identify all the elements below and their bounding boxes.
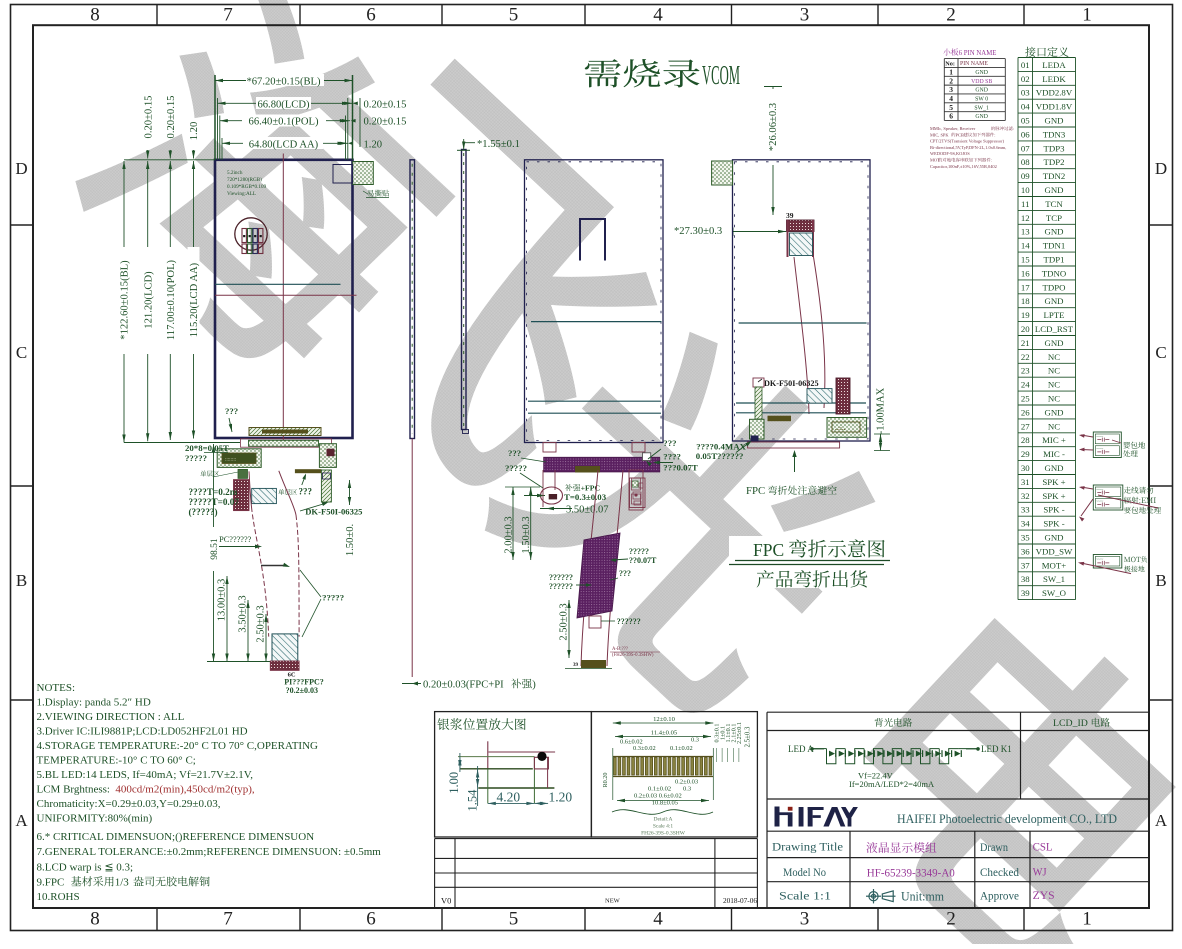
svg-text::: :: [991, 158, 992, 163]
svg-text:SPK -: SPK -: [1043, 505, 1064, 515]
svg-text:35: 35: [1021, 532, 1030, 542]
svg-text:0.20±0.15: 0.20±0.15: [364, 117, 407, 128]
svg-text:C: C: [1155, 343, 1166, 362]
svg-text:0.2±0.03: 0.2±0.03: [675, 779, 698, 786]
svg-text:2018-07-06: 2018-07-06: [723, 896, 757, 905]
svg-text:Scale 4:1: Scale 4:1: [653, 824, 674, 830]
svg-text:10: 10: [1021, 185, 1030, 195]
svg-text:32: 32: [1021, 491, 1030, 501]
svg-text:Checked: Checked: [980, 867, 1019, 879]
svg-text:1: 1: [1082, 909, 1092, 930]
svg-text:3.Driver IC:ILI9881P;LCD:LD052: 3.Driver IC:ILI9881P;LCD:LD052HF2L01 HD: [37, 726, 248, 738]
svg-text:4: 4: [653, 909, 663, 930]
svg-text:NC: NC: [1048, 380, 1060, 390]
svg-text:10.ROHS: 10.ROHS: [37, 891, 80, 903]
svg-text:12±0.10: 12±0.10: [653, 716, 675, 723]
svg-text:LPTE: LPTE: [1043, 310, 1064, 320]
svg-text:1.20: 1.20: [549, 790, 573, 805]
svg-text:*27.30±0.3: *27.30±0.3: [674, 226, 722, 237]
svg-text:0.3: 0.3: [691, 737, 699, 744]
svg-text:02: 02: [1021, 74, 1030, 84]
svg-text:GND: GND: [1044, 115, 1063, 125]
svg-text:38: 38: [1021, 574, 1030, 584]
svg-text:DK-F50I-06325: DK-F50I-06325: [764, 379, 819, 388]
svg-text:..::..: ..::..: [835, 426, 845, 432]
svg-text:0.109*RGB*0.109: 0.109*RGB*0.109: [227, 184, 267, 190]
svg-text:~~~~: ~~~~: [1096, 499, 1103, 503]
svg-text:???: ???: [225, 406, 238, 416]
svg-text:2: 2: [946, 909, 956, 930]
svg-text:18: 18: [1021, 296, 1030, 306]
svg-text:GND: GND: [975, 70, 988, 76]
svg-text:???: ???: [619, 569, 631, 578]
svg-text:???: ???: [299, 487, 313, 497]
svg-text:??????: ??????: [549, 582, 573, 591]
svg-text:?????: ?????: [322, 593, 344, 603]
svg-text:01: 01: [1021, 60, 1030, 70]
svg-text:7.GENERAL TOLERANCE:±0.2mm;REF: 7.GENERAL TOLERANCE:±0.2mm;REFERENCE DIM…: [37, 846, 382, 858]
svg-text:GND: GND: [1044, 227, 1063, 237]
svg-text:Chromaticity:X=0.29±0.03,Y=0.2: Chromaticity:X=0.29±0.03,Y=0.29±0.03,: [37, 798, 221, 810]
svg-text:4.20: 4.20: [497, 790, 521, 805]
svg-text:1.20: 1.20: [189, 122, 200, 141]
svg-text:5: 5: [509, 909, 519, 930]
svg-text:???0.07T: ???0.07T: [663, 463, 698, 473]
svg-text:39: 39: [573, 663, 579, 668]
svg-text:0.3±0.02: 0.3±0.02: [633, 745, 656, 752]
svg-text:HF-65239-3349-A0: HF-65239-3349-A0: [867, 868, 955, 880]
svg-text:3: 3: [800, 5, 810, 26]
svg-text:0.20±0.15: 0.20±0.15: [143, 96, 154, 139]
svg-text:No:: No:: [945, 60, 955, 67]
svg-text:07: 07: [1021, 143, 1030, 153]
svg-text:MIC +: MIC +: [1042, 435, 1066, 445]
svg-text:D: D: [1155, 159, 1167, 178]
svg-text:??????: ??????: [549, 573, 573, 582]
svg-text:27: 27: [1021, 421, 1030, 431]
svg-text:37: 37: [1021, 560, 1030, 570]
svg-text:Detail:A: Detail:A: [654, 817, 673, 823]
svg-text:NOTES:: NOTES:: [37, 682, 76, 694]
svg-text:0.20±0.15: 0.20±0.15: [364, 99, 407, 110]
svg-text:1/3: 1/3: [115, 877, 130, 889]
svg-text:121.20(LCD): 121.20(LCD): [143, 271, 154, 329]
svg-text:DK-F50I-06325: DK-F50I-06325: [305, 507, 362, 517]
svg-text:NC: NC: [1048, 421, 1060, 431]
svg-text:MIC -: MIC -: [1043, 449, 1065, 459]
svg-text:117.00±0.10(POL): 117.00±0.10(POL): [166, 259, 177, 340]
svg-text:TCN: TCN: [1045, 199, 1063, 209]
svg-text:GND: GND: [1044, 338, 1063, 348]
svg-text:64.80(LCD AA): 64.80(LCD AA): [249, 139, 319, 150]
svg-text:PCB: PCB: [956, 132, 964, 137]
svg-text:??0.07T: ??0.07T: [629, 556, 657, 565]
svg-text:GND: GND: [975, 88, 988, 94]
svg-text:8: 8: [90, 909, 100, 930]
svg-text:1.50±0.3: 1.50±0.3: [521, 516, 532, 553]
svg-text:????: ????: [663, 452, 681, 462]
svg-text:34: 34: [1021, 519, 1030, 529]
svg-text:2.VIEWING DIRECTION : ALL: 2.VIEWING DIRECTION : ALL: [37, 711, 185, 723]
svg-text:SPK +: SPK +: [1042, 477, 1065, 487]
svg-text:13.00±0.3: 13.00±0.3: [217, 579, 228, 622]
svg-text:03: 03: [1021, 88, 1030, 98]
svg-text:6.* CRITICAL DIMENSUON;()REFER: 6.* CRITICAL DIMENSUON;()REFERENCE DIMEN…: [37, 831, 315, 843]
svg-text:12: 12: [1021, 213, 1030, 223]
svg-text:TDN3: TDN3: [1043, 129, 1066, 139]
svg-text:28: 28: [1021, 435, 1030, 445]
svg-text:GND: GND: [1044, 185, 1063, 195]
svg-text:GND: GND: [1044, 463, 1063, 473]
svg-text:4: 4: [949, 94, 953, 103]
svg-text:05: 05: [1021, 115, 1030, 125]
svg-text:SW 0: SW 0: [975, 96, 988, 102]
svg-text:TDP1: TDP1: [1043, 254, 1064, 264]
svg-text:(FH26-39S-0.3SHW): (FH26-39S-0.3SHW): [612, 653, 654, 658]
svg-text:24: 24: [1021, 380, 1030, 390]
svg-text:39: 39: [1021, 588, 1030, 598]
svg-text:?????: ?????: [505, 463, 527, 473]
svg-text:400cd/m2(min),450cd/m2(typ),: 400cd/m2(min),450cd/m2(typ),: [115, 784, 255, 796]
svg-text:0.20±0.15: 0.20±0.15: [166, 96, 177, 139]
svg-text:1.50±0.: 1.50±0.: [345, 524, 356, 556]
svg-text:5.BL LED:14 LEDS, If=40mA; Vf: 5.BL LED:14 LEDS, If=40mA; Vf=21.7V±2.1V…: [37, 769, 254, 781]
svg-text:6: 6: [366, 909, 376, 930]
svg-text:SW_1: SW_1: [974, 105, 989, 111]
svg-text:B: B: [1155, 571, 1166, 590]
svg-text:1.54: 1.54: [466, 789, 480, 812]
svg-text:T=0.3±0.03: T=0.3±0.03: [564, 492, 607, 502]
svg-text:22: 22: [1021, 352, 1030, 362]
svg-text:3.50±0.07: 3.50±0.07: [566, 505, 609, 516]
svg-text:3: 3: [949, 85, 953, 94]
svg-text::: :: [994, 132, 995, 137]
svg-text:SW_1: SW_1: [1043, 574, 1065, 584]
svg-text:Drawing Title: Drawing Title: [772, 842, 843, 854]
svg-text:Model No: Model No: [783, 867, 826, 879]
svg-text:3.50±0.3: 3.50±0.3: [238, 595, 249, 632]
svg-text:21: 21: [1021, 338, 1030, 348]
svg-text:08: 08: [1021, 157, 1030, 167]
svg-text:2.25±0.1: 2.25±0.1: [736, 722, 743, 744]
svg-text:?????: ?????: [185, 453, 207, 463]
svg-text:VDD1.8V: VDD1.8V: [1036, 102, 1073, 112]
svg-text:C: C: [16, 343, 27, 362]
svg-text:1.20: 1.20: [364, 139, 383, 150]
svg-text:NC: NC: [1048, 366, 1060, 376]
svg-text:31: 31: [1021, 477, 1030, 487]
svg-text:0.3: 0.3: [683, 786, 691, 793]
svg-text:?????: ?????: [629, 547, 649, 556]
svg-text:2: 2: [949, 76, 953, 85]
svg-text:-1.00MAX: -1.00MAX: [876, 387, 887, 434]
svg-text:Drawn: Drawn: [980, 842, 1008, 854]
svg-text:FPC: FPC: [746, 485, 765, 497]
svg-text:5: 5: [509, 5, 519, 26]
svg-text:TDP3: TDP3: [1043, 143, 1065, 153]
svg-text:VDD2.8V: VDD2.8V: [1036, 88, 1073, 98]
svg-text:~~~~: ~~~~: [1096, 446, 1103, 450]
svg-text:4: 4: [653, 5, 663, 26]
svg-text:11.4±0.05: 11.4±0.05: [651, 730, 678, 737]
svg-text:A: A: [15, 811, 28, 830]
svg-text:LCD_ID: LCD_ID: [1053, 718, 1088, 729]
svg-text:LED K1: LED K1: [981, 744, 1012, 754]
svg-text:5.2inch: 5.2inch: [227, 170, 243, 176]
svg-text:SPK +: SPK +: [1042, 491, 1065, 501]
svg-text:CSL: CSL: [1033, 842, 1053, 854]
svg-text:115.20(LCD AA): 115.20(LCD AA): [189, 262, 200, 337]
svg-text:GND: GND: [1044, 407, 1063, 417]
svg-text:NC: NC: [1048, 352, 1060, 362]
svg-text:5: 5: [949, 103, 953, 112]
svg-text:4.STORAGE TEMPERATURE:-20° C T: 4.STORAGE TEMPERATURE:-20° C TO 70° C,OP…: [37, 740, 319, 752]
svg-text:NEW: NEW: [605, 898, 621, 905]
svg-text:19: 19: [1021, 310, 1030, 320]
svg-text:??????: ??????: [617, 617, 641, 626]
svg-text:*26.06±0.3: *26.06±0.3: [768, 103, 779, 151]
svg-text:CPT/2TVS(Transient Voltage Sup: CPT/2TVS(Transient Voltage Suppressor): [930, 139, 1005, 144]
svg-text:GND: GND: [975, 114, 988, 120]
svg-text:*122.60±0.15(BL): *122.60±0.15(BL): [120, 260, 131, 340]
svg-text:1.Display: panda 5.2″ HD: 1.Display: panda 5.2″ HD: [37, 697, 151, 709]
svg-text:9.FPC: 9.FPC: [37, 877, 65, 889]
svg-text:0.2±0.03 0.6±0.02: 0.2±0.03 0.6±0.02: [634, 793, 682, 800]
svg-text:66.80(LCD): 66.80(LCD): [257, 99, 310, 110]
svg-text:SPK -: SPK -: [1043, 519, 1064, 529]
svg-text:FPC??????: FPC??????: [215, 535, 252, 544]
svg-text:2.50±0.3: 2.50±0.3: [559, 603, 570, 640]
svg-text:20*8=0.05T: 20*8=0.05T: [185, 443, 229, 453]
svg-text:16: 16: [1021, 268, 1030, 278]
svg-text:ZYS: ZYS: [1033, 890, 1055, 902]
svg-text:Scale 1:1: Scale 1:1: [779, 891, 831, 903]
svg-text:8.LCD warp is ≦ 0.3;: 8.LCD warp is ≦ 0.3;: [37, 862, 134, 874]
svg-text:26: 26: [1021, 407, 1030, 417]
svg-text:Viewing:ALL: Viewing:ALL: [227, 191, 256, 197]
svg-text:UNIFORMITY:80%(min): UNIFORMITY:80%(min): [37, 813, 153, 825]
svg-text:8: 8: [90, 5, 100, 26]
svg-text:SW_O: SW_O: [1042, 588, 1066, 598]
svg-text:VDD_SW: VDD_SW: [1036, 546, 1073, 556]
svg-text:If=20mA/LED*2=40mA: If=20mA/LED*2=40mA: [849, 779, 935, 789]
svg-text:MOT+: MOT+: [1042, 560, 1067, 570]
svg-text:1: 1: [1082, 5, 1092, 26]
svg-text:6 PIN NAME: 6 PIN NAME: [959, 50, 997, 57]
svg-text:?0.2±0.03: ?0.2±0.03: [286, 686, 318, 695]
svg-text:2.00±0.3: 2.00±0.3: [504, 516, 515, 553]
svg-text:): ): [532, 680, 536, 691]
svg-text:FH26-39S-0.3SHW: FH26-39S-0.3SHW: [641, 831, 686, 837]
svg-text:*1.55±0.1: *1.55±0.1: [477, 139, 520, 150]
svg-text:PIN NAME: PIN NAME: [960, 61, 988, 67]
svg-text:04: 04: [1021, 102, 1030, 112]
svg-text:15: 15: [1021, 254, 1030, 264]
svg-text:TCP: TCP: [1046, 213, 1062, 223]
svg-text:14: 14: [1021, 241, 1030, 251]
svg-text:39: 39: [786, 211, 794, 220]
svg-text:11: 11: [1021, 199, 1029, 209]
svg-text:20: 20: [1021, 324, 1030, 334]
svg-text:???: ???: [508, 448, 521, 458]
svg-text:30: 30: [1021, 463, 1030, 473]
svg-text:Unit:mm: Unit:mm: [901, 890, 944, 904]
svg-text:HAIFEI Photoelectric developme: HAIFEI Photoelectric development CO., LT…: [897, 811, 1117, 826]
svg-text:R0.20: R0.20: [602, 773, 609, 788]
svg-text:720*1280(RGB): 720*1280(RGB): [227, 176, 262, 183]
svg-text:TDPO: TDPO: [1043, 282, 1066, 292]
svg-text:0.1±0.02: 0.1±0.02: [670, 745, 693, 752]
svg-text:7: 7: [223, 909, 233, 930]
svg-text:B: B: [16, 571, 27, 590]
svg-text:GND: GND: [1044, 532, 1063, 542]
svg-text:FPC: FPC: [753, 540, 784, 560]
svg-text:6: 6: [949, 112, 953, 121]
svg-text:06: 06: [1021, 129, 1030, 139]
svg-text:TDN1: TDN1: [1043, 241, 1065, 251]
svg-text:~~~~: ~~~~: [1096, 557, 1103, 561]
svg-text:2.5±0.3: 2.5±0.3: [744, 726, 751, 747]
svg-text:LEDK: LEDK: [1042, 74, 1066, 84]
svg-text::: :: [1013, 126, 1014, 131]
svg-text:13: 13: [1021, 227, 1030, 237]
svg-text:2: 2: [946, 5, 956, 26]
svg-text:0.20±0.03(FPC+PI: 0.20±0.03(FPC+PI: [423, 680, 504, 691]
svg-text:6: 6: [366, 5, 376, 26]
svg-text:TDP2: TDP2: [1043, 157, 1064, 167]
svg-text:???: ???: [663, 438, 676, 448]
svg-text:*67.20±0.15(BL): *67.20±0.15(BL): [246, 77, 321, 88]
svg-text:LCD_RST: LCD_RST: [1035, 324, 1074, 334]
svg-text:D: D: [15, 159, 27, 178]
svg-text:TDN2: TDN2: [1043, 171, 1065, 181]
svg-text:2.50±0.3: 2.50±0.3: [256, 605, 267, 642]
svg-text:LCM Brghtness:: LCM Brghtness:: [37, 784, 110, 796]
svg-text:NC: NC: [1048, 393, 1060, 403]
svg-text:3: 3: [800, 909, 810, 930]
svg-text:1.00: 1.00: [447, 772, 461, 794]
svg-text:GND: GND: [1044, 296, 1063, 306]
svg-text:36: 36: [1021, 546, 1030, 556]
svg-text:LEDA: LEDA: [1042, 60, 1066, 70]
svg-text:TEMPERATURE:-10° C TO 60° C;: TEMPERATURE:-10° C TO 60° C;: [37, 755, 196, 767]
svg-text:09: 09: [1021, 171, 1030, 181]
svg-text:33: 33: [1021, 505, 1030, 515]
svg-text:1: 1: [949, 67, 953, 76]
svg-text:25: 25: [1021, 393, 1030, 403]
svg-text:66.40±0.1(POL): 66.40±0.1(POL): [249, 117, 319, 128]
svg-text:A: A: [1155, 811, 1168, 830]
svg-text:V0: V0: [441, 896, 451, 906]
svg-text:17: 17: [1021, 282, 1030, 292]
svg-text:7: 7: [223, 5, 233, 26]
svg-text:TDNO: TDNO: [1042, 268, 1066, 278]
svg-text:::::::::: ::::::::: [225, 458, 236, 463]
svg-text:VDD SB: VDD SB: [971, 79, 992, 85]
svg-text:23: 23: [1021, 366, 1030, 376]
svg-text:A-B:???: A-B:???: [612, 647, 628, 652]
svg-text:VCOM: VCOM: [702, 59, 740, 90]
svg-text:0.1±0.02: 0.1±0.02: [648, 786, 671, 793]
svg-text:Approve: Approve: [980, 891, 1019, 903]
svg-text:WJ: WJ: [1033, 867, 1047, 879]
svg-text:29: 29: [1021, 449, 1030, 459]
svg-text:98.51: 98.51: [210, 538, 220, 560]
